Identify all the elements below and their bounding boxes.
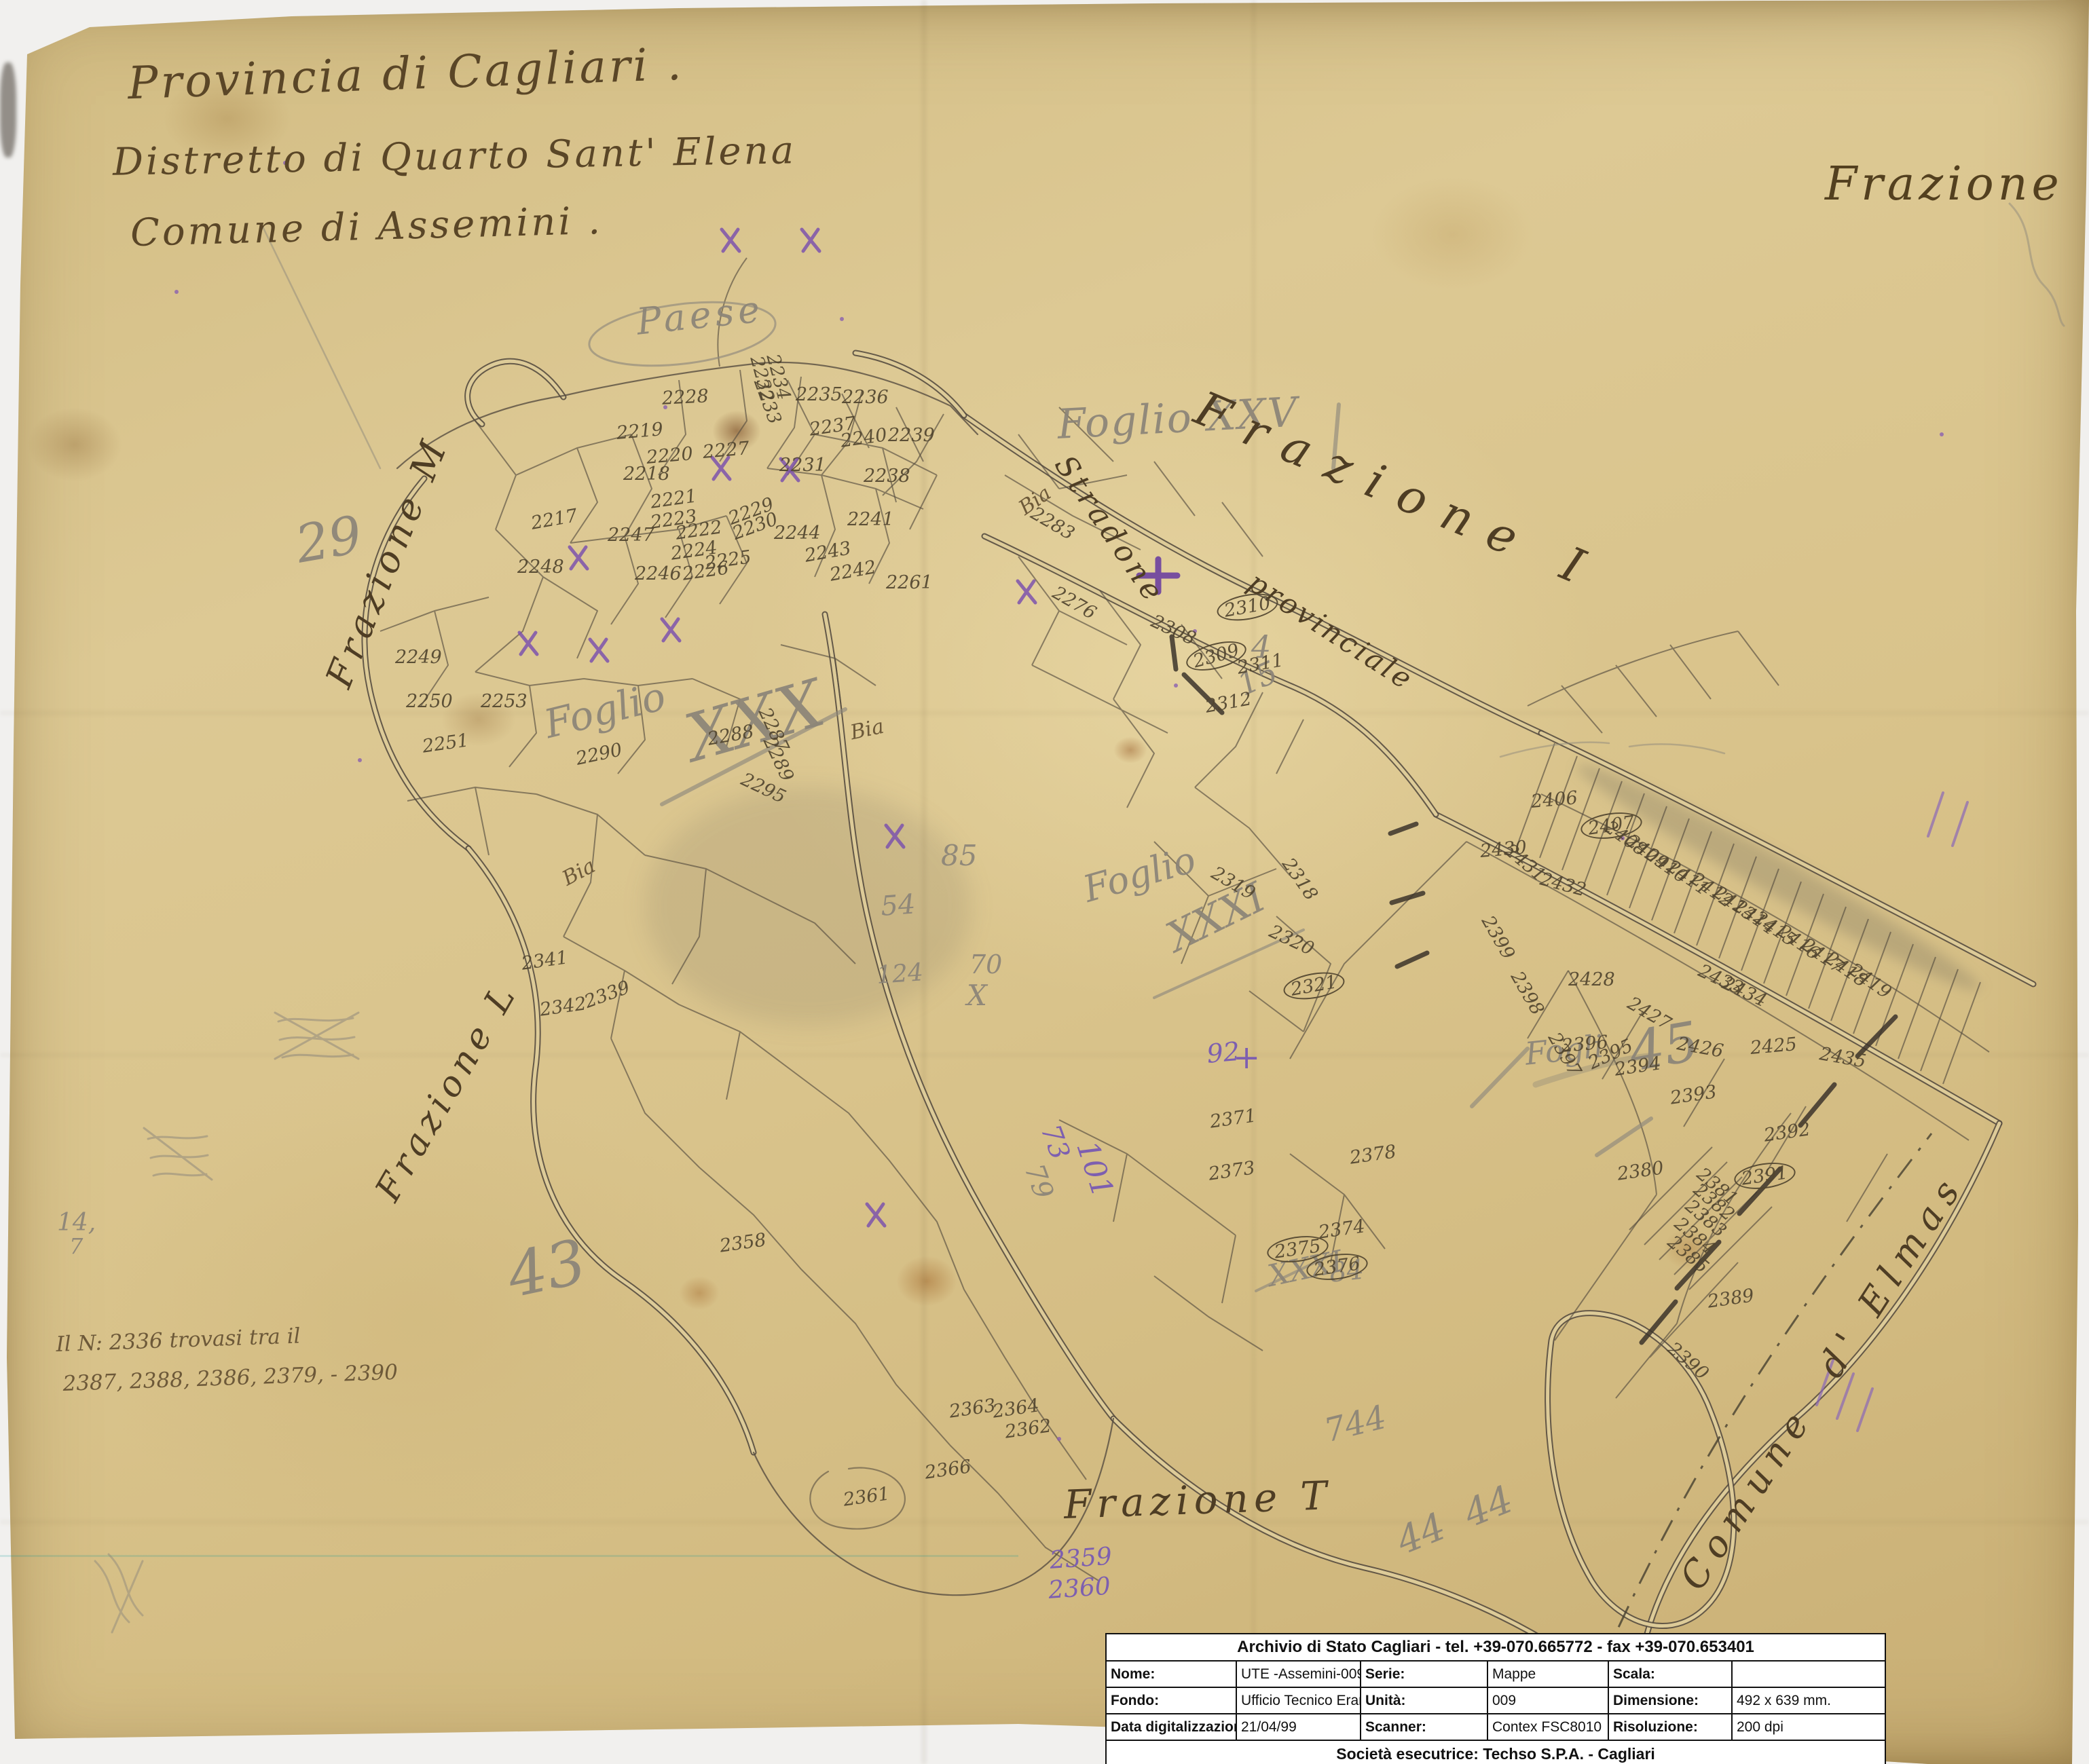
field-serie-label: Serie:	[1361, 1661, 1487, 1687]
parcel-number: 2362	[1003, 1416, 1052, 1441]
map-label: 73	[1036, 1121, 1073, 1163]
map-label: Frazione T	[1063, 1476, 1333, 1524]
parcel-number: 2253	[481, 692, 528, 711]
parcel-number: 2238	[864, 467, 910, 485]
map-label: +	[1233, 1041, 1260, 1074]
field-data-label: Data digitalizzazione:	[1106, 1714, 1236, 1740]
map-label: 2360	[1048, 1575, 1111, 1603]
parcel-number: 2240	[839, 426, 888, 450]
field-serie-value: Mappe	[1487, 1661, 1608, 1687]
map-label: Bia	[849, 717, 886, 744]
parcel-number: 2244	[774, 524, 821, 542]
archive-header: Archivio di Stato Cagliari - tel. +39-07…	[1106, 1634, 1885, 1661]
map-label: 124	[876, 960, 924, 988]
map-annotations-layer: PaeseFoglio XXVFrazione IStradoneprovinc…	[0, 0, 2089, 1764]
map-label: Foglio	[1079, 842, 1200, 908]
map-label: 7	[69, 1235, 83, 1257]
parcel-number: 2235	[796, 386, 843, 404]
parcel-number: 2363	[948, 1396, 997, 1421]
parcel-number: 2241	[847, 510, 894, 529]
field-data-value: 21/04/99	[1236, 1714, 1361, 1740]
parcel-number: 2218	[623, 465, 670, 483]
parcel-number: 2392	[1762, 1120, 1811, 1144]
map-label: Bia	[559, 856, 599, 890]
parcel-number: 2406	[1530, 789, 1578, 811]
parcel-number: 2242	[828, 558, 877, 584]
map-label: 744	[1321, 1401, 1390, 1448]
map-label: 54	[880, 890, 917, 920]
map-label: Paese	[635, 290, 765, 340]
parcel-number: 2380	[1616, 1159, 1665, 1183]
field-risoluzione-value: 200 dpi	[1732, 1714, 1885, 1740]
parcel-number: 2228	[661, 387, 709, 408]
field-dimensione-value: 492 x 639 mm.	[1732, 1687, 1885, 1714]
parcel-number: 2247	[608, 526, 654, 544]
parcel-number: 2219	[616, 420, 664, 443]
parcel-number: 2393	[1669, 1083, 1718, 1107]
parcel-number: 2226	[681, 559, 730, 583]
map-label: 70	[969, 952, 1002, 977]
map-label: Frazione L	[370, 976, 523, 1207]
parcel-number: 2339	[582, 978, 632, 1011]
parcel-number: 2378	[1348, 1142, 1397, 1167]
parcel-number: 2248	[517, 558, 564, 576]
parcel-number: 2371	[1208, 1106, 1257, 1131]
parcel-number: 2239	[888, 426, 935, 445]
map-label: 43	[502, 1231, 591, 1307]
field-scala-value	[1732, 1661, 1885, 1687]
parcel-number: 2361	[842, 1484, 891, 1509]
field-fondo-label: Fondo:	[1106, 1687, 1236, 1714]
parcel-number: 2310	[1215, 589, 1280, 624]
parcel-number: 2318	[1279, 855, 1321, 904]
field-fondo-value: Ufficio Tecnico Erariale	[1236, 1687, 1361, 1714]
parcel-number: 2261	[886, 574, 933, 592]
field-risoluzione-label: Risoluzione:	[1608, 1714, 1732, 1740]
parcel-number: 2419	[1845, 960, 1894, 1002]
parcel-number: 2250	[406, 692, 453, 711]
parcel-number: 2373	[1207, 1159, 1256, 1183]
map-label: 44 44	[1392, 1480, 1518, 1561]
field-unita-label: Unità:	[1361, 1687, 1487, 1714]
parcel-number: 2320	[1267, 922, 1317, 959]
parcel-number: 2321	[1281, 968, 1346, 1003]
parcel-number: 2399	[1478, 913, 1517, 962]
parcel-number: 2236	[842, 388, 889, 407]
parcel-number: 2391	[1733, 1159, 1797, 1193]
parcel-number: 2390	[1664, 1339, 1712, 1383]
map-label: Frazione I	[1189, 384, 1608, 598]
parcel-number: 2220	[646, 445, 694, 467]
map-label: Il N: 2336 trovasi tra il	[56, 1326, 301, 1355]
parcel-number: 2342	[538, 994, 587, 1019]
parcel-number: 2308	[1149, 612, 1199, 649]
parcel-number: 2312	[1204, 690, 1253, 716]
map-label: 14,	[57, 1211, 96, 1235]
map-label: 85	[941, 842, 977, 870]
parcel-number: 2366	[923, 1457, 972, 1482]
parcel-number: 2398	[1507, 969, 1547, 1018]
scanned-map-page: Provincia di Cagliari . Distretto di Qua…	[0, 0, 2089, 1764]
parcel-number: 2246	[635, 565, 682, 583]
parcel-number: 2227	[702, 439, 750, 462]
map-label: 2359	[1049, 1545, 1113, 1573]
parcel-number: 2425	[1750, 1035, 1798, 1057]
map-label: 29	[292, 508, 365, 571]
map-label: 101	[1071, 1138, 1117, 1201]
parcel-number: 2358	[718, 1231, 767, 1255]
field-dimensione-label: Dimensione:	[1608, 1687, 1732, 1714]
archive-footer: Società esecutrice: Techso S.P.A. - Cagl…	[1106, 1740, 1885, 1764]
parcel-number: 2428	[1568, 971, 1615, 989]
field-scanner-label: Scanner:	[1361, 1714, 1487, 1740]
field-unita-value: 009	[1487, 1687, 1608, 1714]
parcel-number: 2341	[520, 948, 569, 973]
parcel-number: 2276	[1050, 584, 1099, 623]
map-label: 79	[1020, 1161, 1057, 1203]
field-nome-value: UTE -Assemini-009 (Tiff)	[1236, 1661, 1361, 1687]
field-nome-label: Nome:	[1106, 1661, 1236, 1687]
parcel-number: 2290	[574, 740, 624, 768]
map-label: XXX	[679, 670, 831, 771]
map-label: 2387, 2388, 2386, 2379, - 2390	[62, 1362, 398, 1395]
parcel-number: 2432	[1538, 870, 1588, 900]
parcel-number: 2374	[1317, 1217, 1366, 1241]
parcel-number: 2389	[1706, 1286, 1755, 1311]
parcel-number: 2249	[395, 648, 442, 667]
parcel-number: 2231	[779, 456, 826, 474]
map-label: Foglio	[540, 676, 669, 744]
field-scala-label: Scala:	[1608, 1661, 1732, 1687]
parcel-number: 2283	[1028, 504, 1077, 544]
map-label: X	[967, 981, 987, 1010]
metadata-table: Archivio di Stato Cagliari - tel. +39-07…	[1105, 1633, 1886, 1764]
parcel-number: 2251	[421, 731, 470, 755]
parcel-number: 2217	[530, 506, 578, 533]
field-scanner-value: Contex FSC8010	[1487, 1714, 1608, 1740]
parcel-number: 2435	[1818, 1045, 1867, 1071]
